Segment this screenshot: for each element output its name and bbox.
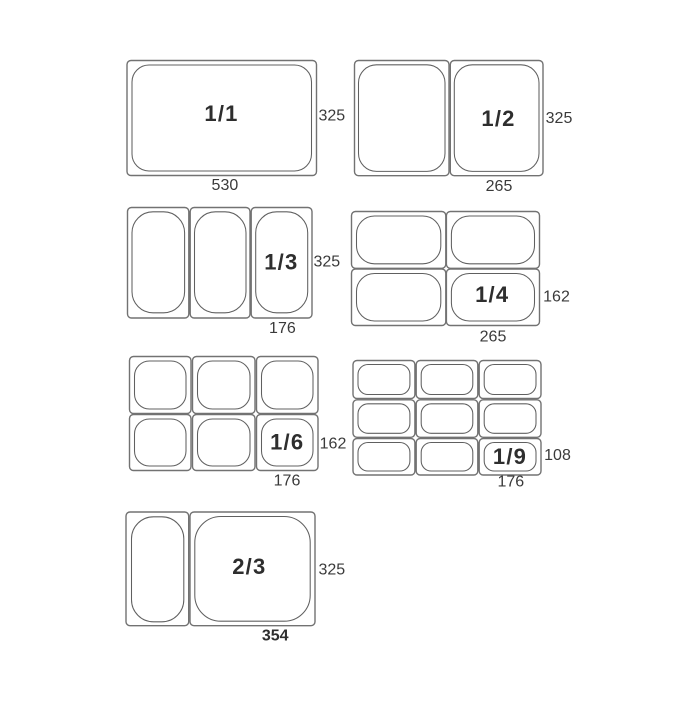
svg-text:325: 325 (313, 254, 340, 271)
svg-text:325: 325 (318, 561, 345, 578)
svg-text:176: 176 (269, 320, 296, 337)
svg-text:1/1: 1/1 (204, 101, 238, 126)
svg-text:354: 354 (262, 628, 289, 645)
svg-text:325: 325 (318, 108, 345, 125)
svg-text:162: 162 (320, 436, 347, 453)
svg-text:1/9: 1/9 (493, 444, 527, 469)
svg-text:1/2: 1/2 (481, 106, 515, 131)
svg-text:1/4: 1/4 (475, 282, 509, 307)
svg-text:176: 176 (274, 473, 301, 490)
svg-text:325: 325 (546, 110, 573, 127)
svg-text:1/3: 1/3 (264, 249, 298, 274)
svg-text:162: 162 (543, 288, 570, 305)
svg-text:176: 176 (497, 474, 524, 491)
svg-text:2/3: 2/3 (232, 554, 266, 579)
svg-text:265: 265 (480, 329, 507, 346)
svg-text:1/6: 1/6 (270, 430, 304, 455)
svg-text:265: 265 (486, 178, 513, 195)
svg-text:108: 108 (544, 447, 571, 464)
svg-text:530: 530 (212, 177, 239, 194)
